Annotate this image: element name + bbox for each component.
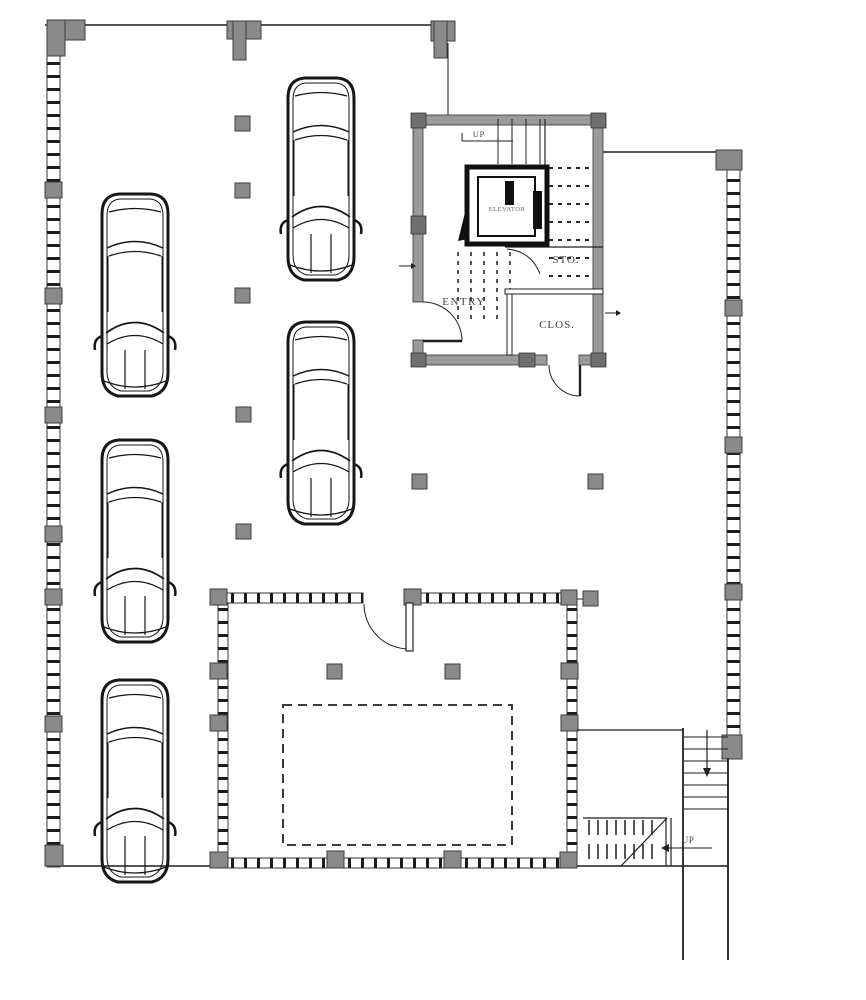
garage-door-arc [364, 604, 409, 649]
core-up-label: UP [473, 130, 485, 139]
right-exterior-wall [727, 168, 740, 742]
storage-door-arc [507, 249, 540, 274]
garage-dashed-area [283, 705, 512, 845]
closet-label: CLOS. [539, 319, 575, 331]
garage-door-leaf [406, 603, 413, 651]
exterior-up-arrowhead [661, 844, 669, 852]
car [95, 194, 176, 396]
exterior-stair: UP [577, 728, 728, 960]
stair-lower-treads [589, 820, 652, 863]
closet-top-wall [505, 289, 603, 294]
elevator: ELEVATOR [458, 167, 547, 244]
elevator-slot [505, 181, 514, 205]
exterior-stair-up-label: UP [682, 835, 695, 845]
car [281, 322, 362, 524]
garage-room [210, 589, 598, 868]
core-exit-door-arc [549, 365, 580, 396]
core-right-wall [593, 125, 603, 355]
floor-plan-page: UP STO. ENTRY CLOS. [0, 0, 866, 1000]
floor-plan-drawing: UP STO. ENTRY CLOS. [0, 0, 866, 1000]
elevator-counterweight [533, 191, 542, 229]
garage-columns [210, 589, 598, 868]
core-left-wall-upper [413, 125, 423, 302]
garage-top-wall-left [218, 593, 363, 603]
top-corner-columns [47, 20, 742, 170]
entry-label: ENTRY [442, 296, 486, 308]
closet-side-wall [507, 294, 512, 355]
car [281, 78, 362, 280]
entry-core: UP STO. ENTRY CLOS. [399, 113, 621, 396]
car [95, 680, 176, 882]
stair-break-line [621, 818, 667, 866]
entry-dashed-treads-below [458, 252, 510, 322]
car [95, 440, 176, 642]
left-exterior-wall [47, 40, 60, 867]
garage-top-wall-right [411, 593, 577, 603]
storage-label: STO. [552, 254, 579, 266]
site-perimeter [45, 20, 742, 867]
garage-bottom-wall [218, 858, 577, 868]
core-top-wall [413, 115, 603, 125]
elevator-label: ELEVATOR [489, 206, 526, 213]
